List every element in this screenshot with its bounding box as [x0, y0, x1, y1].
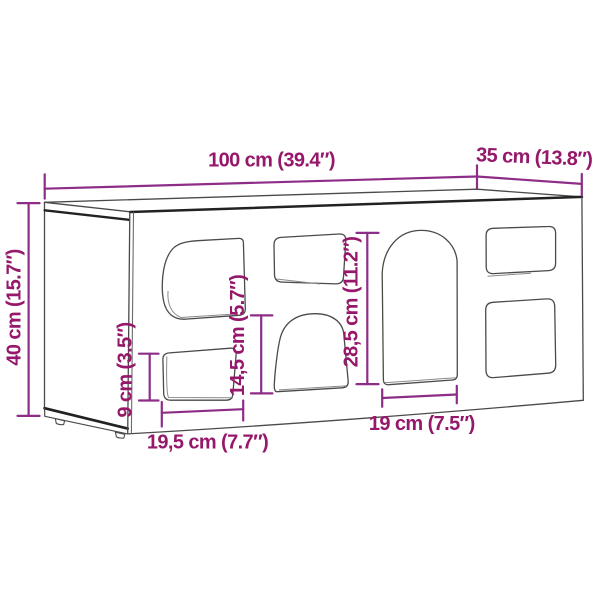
- svg-text:40 cm (15.7″): 40 cm (15.7″): [4, 249, 26, 365]
- svg-text:100 cm (39.4″): 100 cm (39.4″): [208, 150, 335, 172]
- svg-text:9 cm (3.5″): 9 cm (3.5″): [115, 322, 137, 417]
- svg-text:35 cm (13.8″): 35 cm (13.8″): [476, 144, 593, 171]
- svg-text:19 cm (7.5″): 19 cm (7.5″): [369, 413, 475, 435]
- svg-text:19,5 cm (7.7″): 19,5 cm (7.7″): [147, 432, 268, 454]
- svg-text:28,5 cm (11.2″): 28,5 cm (11.2″): [341, 237, 363, 368]
- svg-text:14,5 cm (5.7″): 14,5 cm (5.7″): [227, 275, 249, 396]
